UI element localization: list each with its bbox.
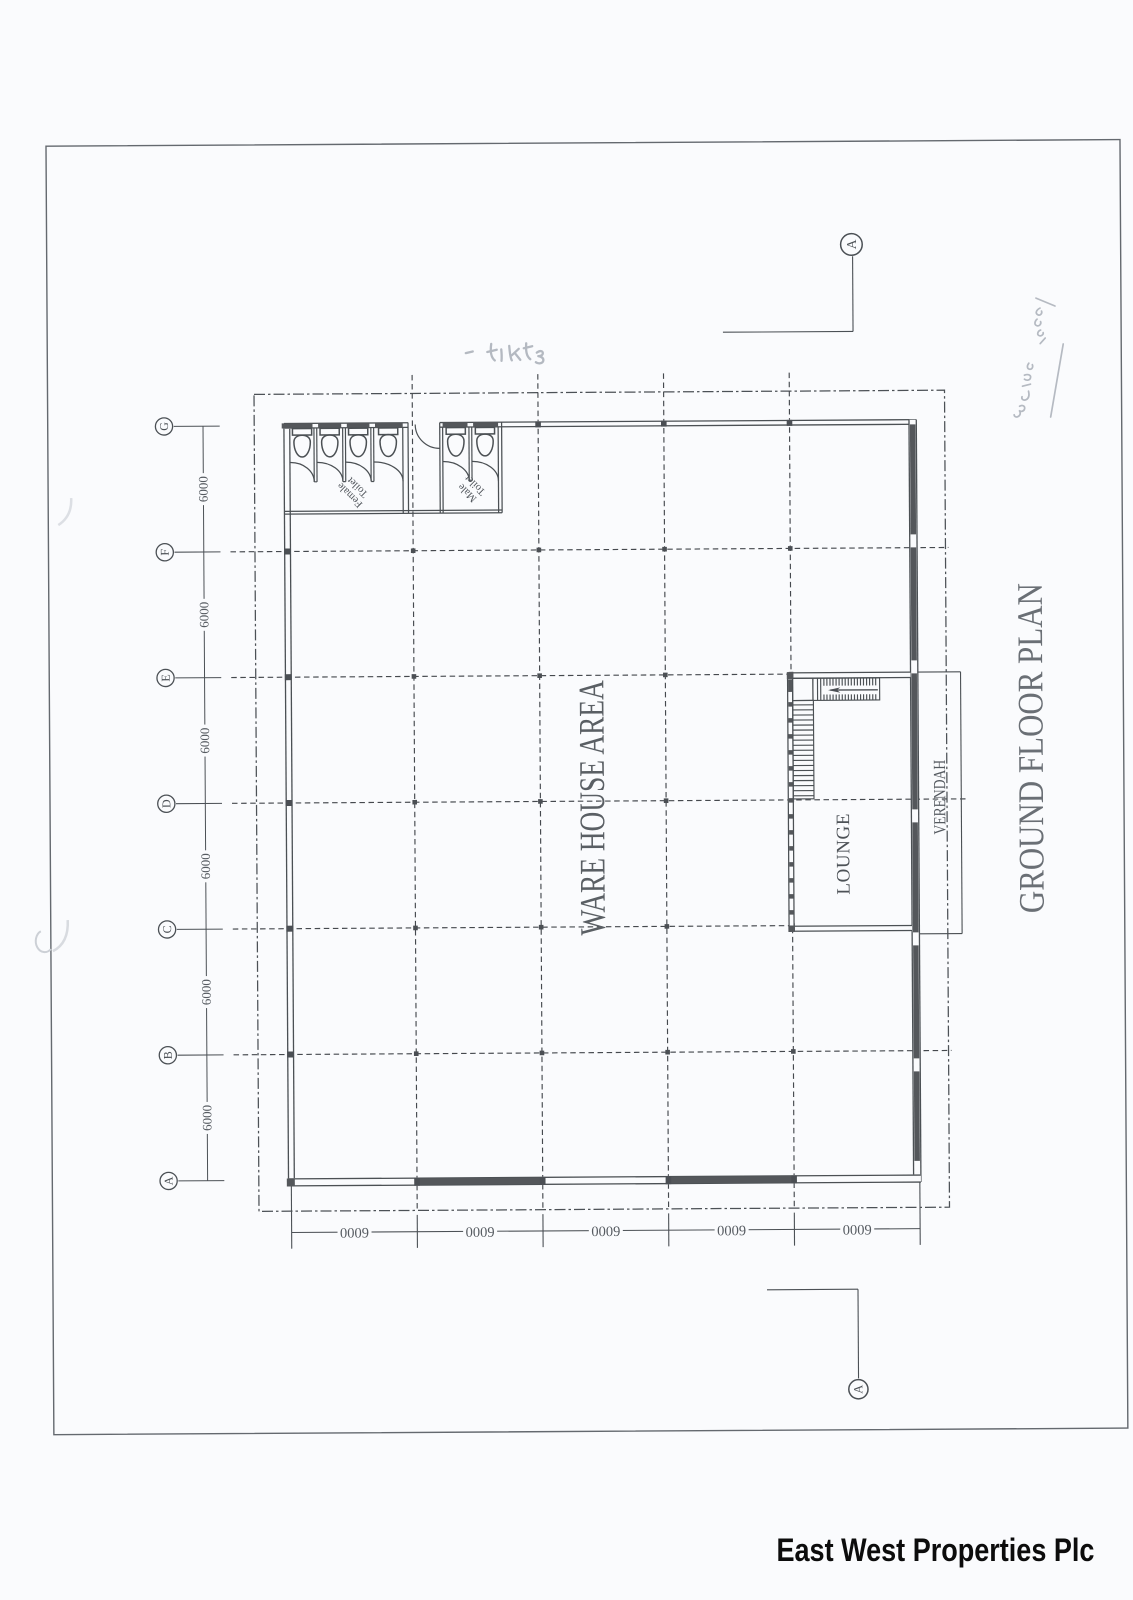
svg-text:0009: 0009 xyxy=(717,1223,746,1239)
svg-text:6000: 6000 xyxy=(196,602,211,628)
svg-text:B: B xyxy=(161,1051,175,1059)
svg-text:6000: 6000 xyxy=(197,728,212,754)
svg-text:6000: 6000 xyxy=(196,476,211,502)
svg-text:E: E xyxy=(159,674,173,681)
svg-text:C: C xyxy=(160,925,174,933)
svg-text:East West Properties Plc: East West Properties Plc xyxy=(777,1533,1095,1569)
svg-text:WARE HOUSE AREA: WARE HOUSE AREA xyxy=(572,680,613,936)
svg-text:0009: 0009 xyxy=(591,1224,620,1240)
svg-text:D: D xyxy=(159,799,173,808)
svg-text:6000: 6000 xyxy=(199,1105,214,1131)
svg-text:G: G xyxy=(157,422,171,431)
svg-text:LOUNGE: LOUNGE xyxy=(833,813,854,895)
svg-text:0009: 0009 xyxy=(340,1226,369,1242)
svg-text:A: A xyxy=(844,239,859,249)
svg-text:VERENDAH: VERENDAH xyxy=(931,760,950,835)
svg-text:6000: 6000 xyxy=(198,853,213,879)
svg-text:GROUND FLOOR PLAN: GROUND FLOOR PLAN xyxy=(1011,583,1053,913)
svg-text:A: A xyxy=(162,1176,176,1185)
svg-text:A: A xyxy=(851,1385,865,1394)
svg-text:0009: 0009 xyxy=(466,1225,495,1241)
svg-text:F: F xyxy=(158,549,172,556)
svg-text:0009: 0009 xyxy=(843,1222,872,1238)
svg-text:6000: 6000 xyxy=(199,979,214,1005)
